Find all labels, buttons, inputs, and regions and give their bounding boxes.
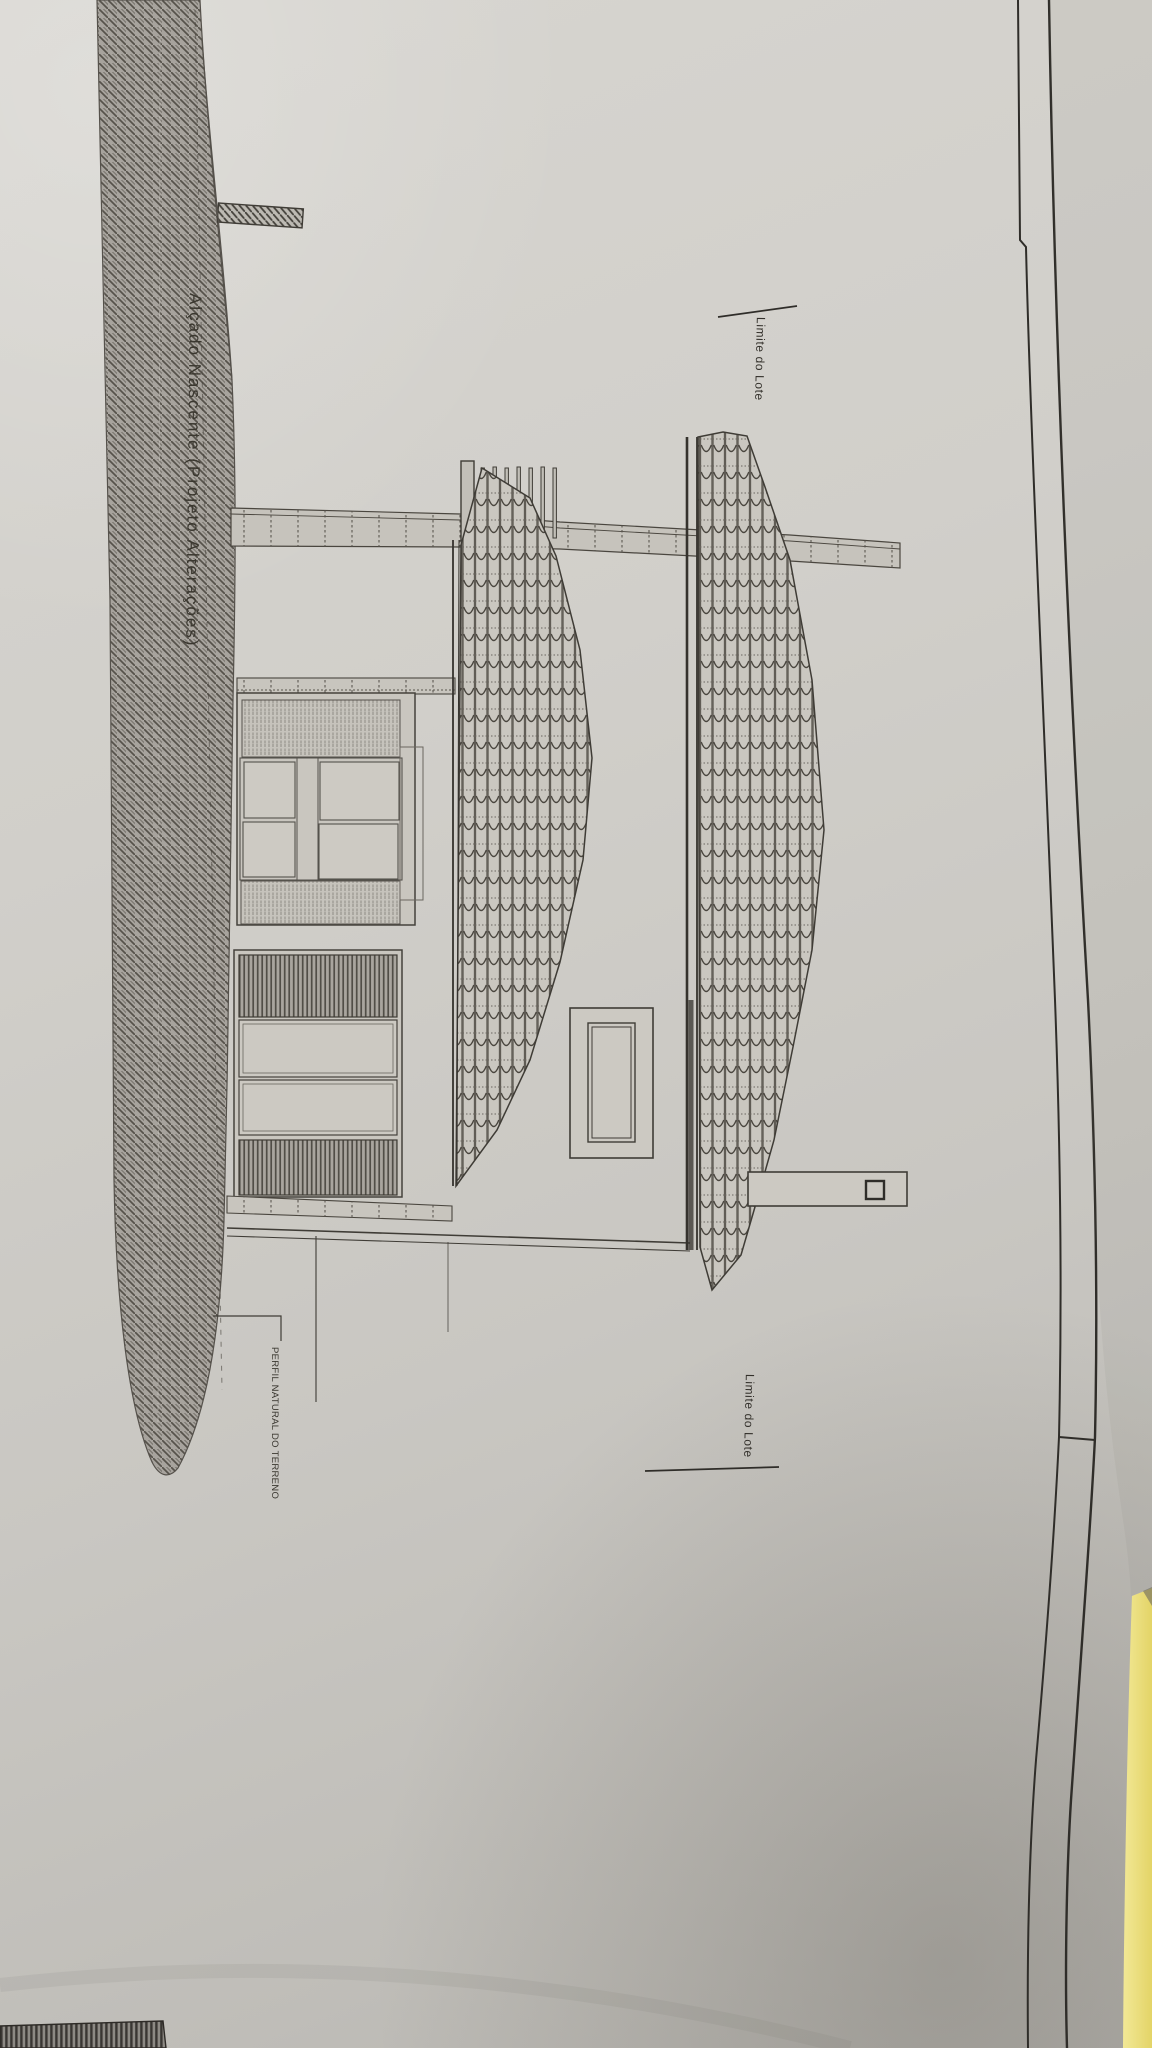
window-upper [237,693,423,925]
window-lower [234,950,402,1197]
lot-boundary-tick-top [718,306,797,317]
boundary-wall-bottom [748,1172,907,1206]
facade-coping-top [237,678,455,694]
roof-ridge [687,437,697,1250]
elevation-drawing-sheet [0,0,1152,2048]
boundary-wall-top [231,508,900,568]
terrain-detail-bar [217,203,303,228]
roof-skylight [570,1008,653,1158]
facade-coping-bottom [227,1196,452,1221]
adjacent-sheet-striped-edge [0,2021,166,2048]
lot-boundary-label-bottom: Limite do Lote [741,1374,757,1458]
terrain-profile-leader [213,1316,281,1341]
facade-base-lines [227,1228,690,1402]
paper-edge-shading [1049,0,1152,1596]
drawing-title: Alçado Nascente (Projeto Alterações) [181,293,205,648]
lot-boundary-tick-bottom [645,1467,779,1471]
terrain-hatch-band [97,0,235,1475]
photo-of-architectural-drawing: Alçado Nascente (Projeto Alterações) Lim… [0,0,1152,2048]
lot-boundary-label-top: Limite do Lote [752,317,768,401]
terrain-profile-label: PERFIL NATURAL DO TERRENO [269,1347,280,1499]
folder-yellow-edge [1123,1587,1152,2048]
